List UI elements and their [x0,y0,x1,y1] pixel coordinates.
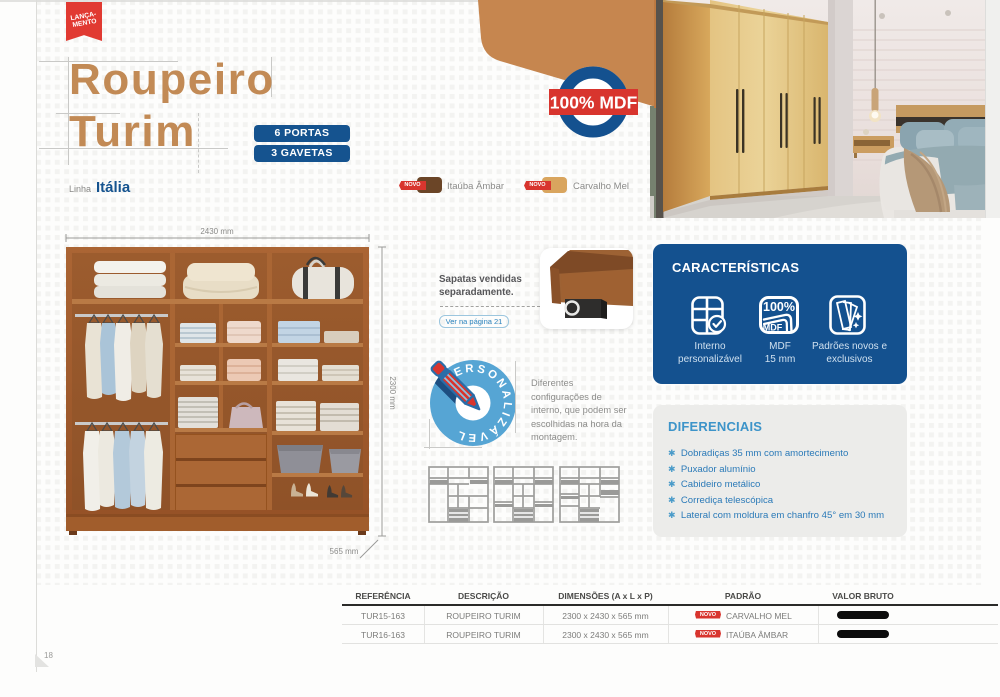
svg-text:100% MDF: 100% MDF [550,93,638,113]
svg-text:2430 mm: 2430 mm [200,227,234,236]
svg-text:2300 mm: 2300 mm [388,376,397,410]
svg-text:100%: 100% [763,300,795,314]
svg-text:565 mm: 565 mm [330,547,359,556]
svg-text:MDF: MDF [763,323,783,333]
